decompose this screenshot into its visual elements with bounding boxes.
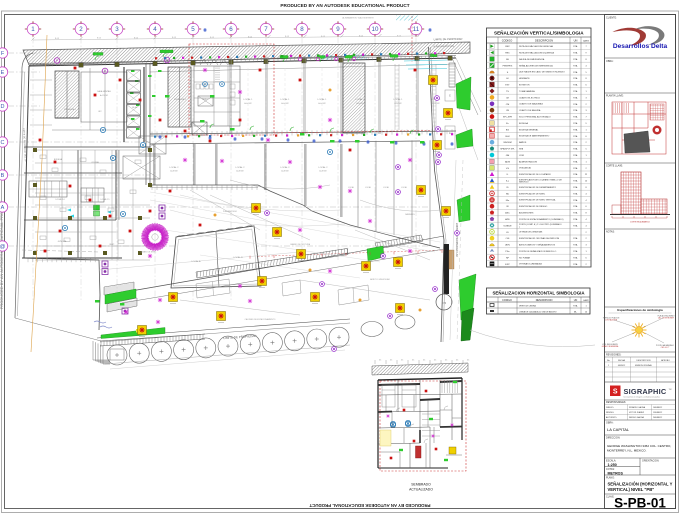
svg-text:PRODUCED BY AN AUTODESK EDUCAT: PRODUCED BY AN AUTODESK EDUCATIONAL PROD… — [280, 3, 409, 8]
svg-text:3.5: 3.5 — [456, 360, 458, 362]
svg-text:CE: CE — [506, 97, 510, 99]
svg-text:PZA.: PZA. — [573, 109, 578, 112]
svg-text:PZA.: PZA. — [573, 45, 578, 48]
svg-text:DESCRIPCION: DESCRIPCION — [535, 38, 553, 42]
svg-text:LA CAPITAL: LA CAPITAL — [607, 427, 630, 432]
svg-text:A: A — [1, 205, 5, 211]
svg-text:CUARTO DE BASURA.: CUARTO DE BASURA. — [519, 109, 541, 112]
svg-text:10/ENE/12: 10/ENE/12 — [653, 407, 662, 409]
svg-text:GRADO INGENIERIA: GRADO INGENIERIA — [602, 345, 619, 348]
svg-text:09/05/12: 09/05/12 — [618, 365, 625, 367]
svg-text:EXT: EXT — [505, 85, 510, 87]
svg-text:PZA.: PZA. — [573, 244, 578, 247]
svg-text:HIDRANTE: HIDRANTE — [519, 77, 530, 80]
svg-text:CON TAQUETE: CON TAQUETE — [605, 319, 618, 322]
svg-text:PZA.: PZA. — [573, 96, 578, 99]
svg-text:E: E — [449, 131, 451, 135]
svg-text:LOCAL 1: LOCAL 1 — [281, 98, 291, 101]
svg-text:DIRECCION:: DIRECCION: — [606, 437, 620, 440]
svg-text:ADMINISTRACION: ADMINISTRACION — [519, 160, 538, 163]
svg-text:PZA.: PZA. — [573, 71, 578, 74]
svg-text:CODIGO: CODIGO — [502, 38, 513, 42]
svg-text:GEORGE WASHINGTON 3452 COL. CE: GEORGE WASHINGTON 3452 COL. CENTRO, — [607, 444, 671, 448]
svg-text:ASC: ASC — [505, 212, 510, 215]
svg-text:POSTE DE SEÑALIZACION SENCILLO: POSTE DE SEÑALIZACION SENCILLO — [519, 250, 557, 253]
svg-text:los expertos en imagen y señal: los expertos en imagen y señalizacion gr… — [624, 396, 660, 399]
svg-text:PZA.: PZA. — [573, 167, 578, 170]
svg-text:NO FUMAR: NO FUMAR — [519, 256, 531, 259]
svg-text:1:250: 1:250 — [608, 463, 617, 467]
svg-text:A=54 M2: A=54 M2 — [394, 102, 401, 105]
svg-text:LOCAL 2: LOCAL 2 — [319, 166, 329, 169]
svg-text:REVISIONES:: REVISIONES: — [606, 354, 622, 357]
svg-text:PZA.: PZA. — [573, 199, 578, 202]
svg-text:A=54 M2: A=54 M2 — [432, 102, 439, 105]
svg-text:10: 10 — [372, 26, 379, 33]
svg-text:UN: UN — [574, 38, 578, 42]
svg-text:VIGILANCIA: VIGILANCIA — [519, 167, 531, 170]
svg-text:PZA.: PZA. — [573, 186, 578, 189]
svg-text:CUARTO ELECTRICO: CUARTO ELECTRICO — [519, 96, 541, 99]
svg-text:MONTERREY, N.L. MEXICO.: MONTERREY, N.L. MEXICO. — [607, 449, 647, 453]
svg-text:CAMBIO DE NIVEL: CAMBIO DE NIVEL — [140, 251, 157, 254]
svg-text:CODIGO: CODIGO — [502, 299, 512, 302]
svg-text:BG: BG — [506, 129, 509, 131]
svg-text:PZA.: PZA. — [573, 256, 578, 259]
svg-text:ADM: ADM — [505, 160, 510, 163]
svg-text:PZA.: PZA. — [573, 218, 578, 221]
svg-text:TOMA SIAMESA: TOMA SIAMESA — [519, 90, 535, 93]
svg-text:DESCRIPCION: DESCRIPCION — [637, 360, 651, 362]
svg-text:PZA.: PZA. — [573, 173, 578, 176]
svg-text:Desarrollos Delta: Desarrollos Delta — [613, 43, 668, 50]
svg-text:PZA.: PZA. — [573, 58, 578, 61]
svg-text:BAÑOS: BAÑOS — [519, 141, 527, 144]
svg-text:ELEV.: ELEV. — [132, 107, 138, 109]
svg-text:S: S — [613, 389, 618, 396]
svg-text:3.5: 3.5 — [379, 360, 381, 362]
svg-text:APROBO: APROBO — [661, 359, 670, 362]
svg-text:A=54 M2: A=54 M2 — [318, 102, 325, 105]
svg-text:PZA.: PZA. — [573, 205, 578, 208]
svg-text:SEMBRADO: SEMBRADO — [411, 483, 431, 487]
svg-text:A=54 M2: A=54 M2 — [244, 102, 251, 105]
svg-text:CORTE ESQUEMATICO: CORTE ESQUEMATICO — [630, 221, 651, 224]
svg-text:CB: CB — [506, 110, 510, 112]
svg-text:ACTUALIZADO: ACTUALIZADO — [409, 488, 433, 492]
svg-text:PZA.: PZA. — [573, 103, 578, 106]
svg-text:SEÑALIZACION HORIZONTAL SIMBOL: SEÑALIZACION HORIZONTAL SIMBOLOGIA — [492, 291, 585, 296]
svg-text:5: 5 — [191, 26, 195, 33]
svg-text:OIS: OIS — [506, 238, 510, 240]
svg-text:LIMITE DE PROPIEDAD: LIMITE DE PROPIEDAD — [434, 37, 463, 42]
svg-text:PRODUCED BY AN AUTODESK EDUCAT: PRODUCED BY AN AUTODESK EDUCATIONAL PROD… — [0, 200, 4, 309]
svg-text:VG: VG — [506, 168, 509, 170]
svg-text:4: 4 — [153, 26, 157, 33]
svg-text:S-PB-01: S-PB-01 — [614, 496, 666, 511]
svg-text:BODEGA: BODEGA — [54, 158, 63, 161]
svg-text:PZA.: PZA. — [573, 116, 578, 119]
svg-text:B-M: B-M — [505, 136, 509, 138]
svg-text:S-MBLE: S-MBLE — [503, 225, 512, 227]
svg-text:OBRA:: OBRA: — [606, 60, 614, 63]
svg-text:A=120 M2: A=120 M2 — [100, 94, 108, 97]
svg-text:15/ENE/12: 15/ENE/12 — [653, 412, 662, 414]
svg-text:SERGIO GAONA: SERGIO GAONA — [629, 416, 644, 419]
svg-text:ARROYO VEHICULAR: ARROYO VEHICULAR — [370, 278, 390, 281]
svg-text:LINEA DE CALZADA 10 CM DE ANCH: LINEA DE CALZADA 10 CM DE ANCHO — [519, 311, 557, 314]
svg-text:IDENTIFICADOR DE RIESGO: IDENTIFICADOR DE RIESGO — [519, 205, 548, 208]
svg-text:PZA.: PZA. — [573, 52, 578, 55]
svg-text:3.5: 3.5 — [434, 360, 436, 362]
svg-text:PZA.: PZA. — [573, 263, 578, 266]
svg-text:LIMITE DE PROPIEDAD / AV.: LIMITE DE PROPIEDAD / AV. — [455, 223, 459, 258]
svg-text:LOCAL 14: LOCAL 14 — [56, 198, 65, 201]
svg-text:ORIENTACION:: ORIENTACION: — [642, 460, 659, 463]
svg-text:LOCAL: LOCAL — [348, 186, 354, 189]
svg-text:F70: F70 — [442, 302, 447, 305]
svg-text:BODEGA DE MANTENIMIENTO: BODEGA DE MANTENIMIENTO — [519, 135, 550, 138]
svg-text:GM: GM — [506, 155, 510, 157]
svg-text:SERVICIO: SERVICIO — [519, 182, 529, 184]
svg-text:VERTICAL) NIVEL "PB": VERTICAL) NIVEL "PB" — [608, 487, 655, 492]
svg-text:CAMBIO DE TEXTURA: CAMBIO DE TEXTURA — [290, 243, 311, 246]
svg-text:LOCAL: LOCAL — [401, 186, 407, 189]
svg-text:AUTORIZO:: AUTORIZO: — [606, 416, 617, 419]
svg-text:3.5: 3.5 — [423, 360, 425, 362]
svg-text:DESCRIPCION: DESCRIPCION — [536, 299, 553, 302]
svg-text:C: C — [1, 140, 5, 146]
svg-text:PZA.: PZA. — [573, 135, 578, 138]
svg-text:BODEGA GENERAL: BODEGA GENERAL — [519, 128, 539, 131]
svg-text:ESCALERA 1: ESCALERA 1 — [64, 108, 76, 111]
svg-text:TM: TM — [669, 389, 672, 391]
svg-text:@: @ — [0, 244, 6, 250]
svg-text:No.: No. — [607, 360, 611, 362]
svg-text:PZA.: PZA. — [573, 148, 578, 151]
svg-text:CORTE LLAVE:: CORTE LLAVE: — [606, 165, 623, 168]
svg-text:RUTA DE EVACUACION DERECHA: RUTA DE EVACUACION DERECHA — [519, 45, 553, 48]
svg-text:EXTINTOR: EXTINTOR — [519, 85, 530, 87]
svg-text:LD: LD — [506, 232, 509, 234]
svg-text:2: 2 — [79, 26, 83, 33]
svg-text:A=38 M2: A=38 M2 — [319, 170, 326, 173]
svg-text:RESPONSABLES:: RESPONSABLES: — [606, 401, 626, 404]
svg-text:ESCALERA 2: ESCALERA 2 — [174, 98, 186, 101]
svg-text:PZA.: PZA. — [573, 212, 578, 215]
svg-text:LOCAL 2: LOCAL 2 — [281, 166, 291, 169]
svg-text:3.5: 3.5 — [445, 360, 447, 362]
svg-text:AVN: AVN — [505, 244, 510, 247]
svg-text:GYM: GYM — [519, 155, 524, 157]
svg-text:P: P — [166, 58, 168, 62]
svg-text:PZA.: PZA. — [573, 77, 578, 80]
svg-text:IDENTIFICADOR DE NIVEL: IDENTIFICADOR DE NIVEL — [519, 192, 546, 195]
svg-text:ASCENSORES: ASCENSORES — [519, 212, 534, 215]
svg-text:PZA.: PZA. — [573, 90, 578, 93]
svg-text:SPA/SPV/ SPL: SPA/SPV/ SPL — [500, 148, 515, 151]
svg-text:IDENTIFICADOR DE DEPARTAMENTO: IDENTIFICADOR DE DEPARTAMENTO — [519, 186, 557, 189]
svg-text:SIGRAPHIC: SIGRAPHIC — [624, 387, 667, 396]
svg-text:E: E — [1, 70, 5, 76]
svg-text:QUE HACER EN CASO DE SISMO E I: QUE HACER EN CASO DE SISMO E INCENDIO — [519, 71, 565, 74]
svg-text:IDENTIFICADOR DE LOCATARIO: IDENTIFICADOR DE LOCATARIO — [519, 173, 551, 176]
svg-text:PZA.: PZA. — [573, 122, 578, 125]
svg-text:P: P — [56, 59, 58, 63]
svg-text:IDENTIFICADOR DE NIVEL VERTICA: IDENTIFICADOR DE NIVEL VERTICAL — [519, 199, 557, 202]
svg-text:CANT.: CANT. — [583, 299, 589, 302]
svg-text:A=38 M2: A=38 M2 — [236, 170, 243, 173]
svg-text:3.5: 3.5 — [412, 360, 414, 362]
svg-text:VITRINAS ILUMINADAS: VITRINAS ILUMINADAS — [519, 263, 542, 266]
svg-text:LOCAL 2: LOCAL 2 — [170, 166, 180, 169]
svg-text:RICARDO GAONA: RICARDO GAONA — [629, 406, 646, 409]
svg-text:NOTAS:: NOTAS: — [606, 231, 615, 234]
svg-text:AVISOS VARIOS Y SEÑALAMIENTOS: AVISOS VARIOS Y SEÑALAMIENTOS — [519, 244, 556, 247]
svg-text:LOCAL: LOCAL — [365, 186, 371, 189]
svg-text:E: E — [449, 94, 451, 98]
svg-text:11: 11 — [413, 26, 420, 33]
svg-text:GYM-SPA: GYM-SPA — [58, 240, 67, 243]
svg-text:A=38 M2: A=38 M2 — [170, 170, 177, 173]
svg-text:B: B — [1, 173, 5, 179]
svg-text:PZA.: PZA. — [573, 192, 578, 195]
svg-text:DIBUJO:: DIBUJO: — [606, 407, 614, 409]
svg-text:VERTICE CEBRA: VERTICE CEBRA — [519, 305, 536, 308]
svg-text:SPL-SPE: SPL-SPE — [503, 117, 513, 119]
svg-text:3: 3 — [115, 26, 119, 33]
svg-text:LOCAL 1: LOCAL 1 — [318, 98, 328, 101]
svg-text:PZA.: PZA. — [573, 224, 578, 227]
svg-text:SALIDA DE EMERGENCIA: SALIDA DE EMERGENCIA — [519, 58, 545, 61]
svg-text:METROS: METROS — [608, 471, 624, 475]
svg-text:PZA.: PZA. — [573, 154, 578, 157]
svg-text:PZA.: PZA. — [573, 128, 578, 131]
svg-text:PEM/PEX: PEM/PEX — [503, 65, 513, 67]
svg-text:PLANTA LLAVE:: PLANTA LLAVE: — [606, 95, 624, 98]
svg-text:IDENTIFICADOR OFICINAS SHOWROO: IDENTIFICADOR OFICINAS SHOWROOM — [519, 237, 559, 240]
svg-text:8: 8 — [300, 26, 304, 33]
svg-text:LETRAS DECORATIVAS: LETRAS DECORATIVAS — [519, 231, 543, 234]
svg-text:CED. 40 2": CED. 40 2" — [661, 347, 670, 349]
svg-text:SEÑALADORES DE EMERGENCIA: SEÑALADORES DE EMERGENCIA — [519, 64, 553, 67]
svg-text:6: 6 — [229, 26, 233, 33]
svg-text:ALINEAMIENTO VIAL: ALINEAMIENTO VIAL — [433, 45, 455, 48]
svg-text:PZA.: PZA. — [573, 305, 578, 308]
svg-text:PZA.: PZA. — [573, 64, 578, 67]
svg-text:LOCAL 1: LOCAL 1 — [244, 98, 254, 101]
svg-text:SOLO PERSONAL AUTORIZADO: SOLO PERSONAL AUTORIZADO — [519, 116, 551, 119]
svg-text:PRODUCED BY AN AUTODESK EDUCAT: PRODUCED BY AN AUTODESK EDUCATIONAL PROD… — [309, 503, 430, 508]
svg-text:FECHA: FECHA — [618, 359, 625, 362]
svg-text:WH/WM: WH/WM — [503, 142, 511, 144]
svg-text:RAMPA 8%: RAMPA 8% — [405, 213, 415, 216]
svg-text:EMISION ORIGINAL: EMISION ORIGINAL — [635, 364, 652, 367]
svg-text:REVISO:: REVISO: — [606, 412, 615, 414]
svg-text:POSTE DE ESTACIONAMIENTO (ILUM: POSTE DE ESTACIONAMIENTO (ILUMINADO) — [519, 218, 564, 221]
svg-text:7: 7 — [264, 26, 268, 33]
svg-text:VICTOR JUAREZ: VICTOR JUAREZ — [629, 411, 645, 414]
svg-text:COCINA: COCINA — [91, 161, 99, 164]
svg-text:1: 1 — [31, 26, 35, 33]
svg-text:PZA.: PZA. — [573, 237, 578, 240]
svg-text:CUARTO DE MAQUINAS: CUARTO DE MAQUINAS — [519, 103, 543, 106]
svg-text:LOCAL 15: LOCAL 15 — [101, 198, 110, 201]
svg-text:OBRA:: OBRA: — [606, 422, 614, 425]
svg-text:SERV.: SERV. — [202, 99, 208, 101]
svg-text:PZA.: PZA. — [573, 160, 578, 163]
svg-text:APE: APE — [505, 218, 510, 221]
svg-text:UN: UN — [574, 299, 578, 302]
svg-text:EXP: EXP — [505, 264, 510, 266]
svg-text:PZA.: PZA. — [573, 84, 578, 87]
svg-text:CM: CM — [506, 104, 510, 106]
svg-text:SEÑALIZACIÓN (HORIZONTAL Y: SEÑALIZACIÓN (HORIZONTAL Y — [608, 482, 673, 487]
svg-text:LOCAL: LOCAL — [383, 186, 389, 189]
svg-text:LOCAL 2: LOCAL 2 — [236, 166, 246, 169]
svg-text:SPA: SPA — [519, 148, 524, 151]
svg-text:9: 9 — [336, 26, 340, 33]
svg-text:PLANO:: PLANO: — [606, 477, 615, 480]
svg-text:PZA.: PZA. — [573, 180, 578, 183]
svg-text:PZA.: PZA. — [573, 250, 578, 253]
svg-text:PZA.: PZA. — [573, 141, 578, 144]
svg-text:LOCAL 1: LOCAL 1 — [394, 98, 404, 101]
svg-text:CAL. 18 RETROREF.: CAL. 18 RETROREF. — [658, 317, 675, 320]
svg-text:3.5: 3.5 — [390, 360, 392, 362]
svg-text:Especificaciones de simbología: Especificaciones de simbología — [617, 308, 663, 312]
svg-text:SEÑALIZACIÓN VERTICAL/SIMBOLOG: SEÑALIZACIÓN VERTICAL/SIMBOLOGIA — [494, 29, 584, 36]
svg-text:CLIENTE:: CLIENTE: — [606, 17, 617, 20]
svg-text:SALA VENTAS: SALA VENTAS — [97, 90, 111, 93]
svg-text:PLAZA ACCESO: PLAZA ACCESO — [223, 210, 238, 213]
svg-text:POSTE (COMP. E.) Y LOGOTIPO (I: POSTE (COMP. E.) Y LOGOTIPO (ILUMINADO — [519, 223, 562, 226]
svg-text:3.5: 3.5 — [401, 360, 403, 362]
svg-text:RUTA DE EVACUACION IZQUIERDA: RUTA DE EVACUACION IZQUIERDA — [519, 52, 555, 55]
svg-text:ALINEAMIENTO VIAL EXISTENTE: ALINEAMIENTO VIAL EXISTENTE — [342, 17, 374, 20]
svg-text:VEST.: VEST. — [109, 244, 115, 246]
svg-text:CAJONES DE ESTACIONAMIENTO: CAJONES DE ESTACIONAMIENTO — [245, 318, 276, 321]
svg-text:ML.: ML. — [574, 312, 578, 314]
svg-text:20/ENE/12: 20/ENE/12 — [653, 417, 662, 419]
svg-text:A=38 M2: A=38 M2 — [281, 170, 288, 173]
svg-text:D: D — [1, 104, 5, 110]
svg-text:BODEGA: BODEGA — [519, 122, 529, 125]
svg-text:CANT.: CANT. — [583, 39, 590, 42]
svg-text:A=54 M2: A=54 M2 — [281, 102, 288, 105]
svg-text:3.5: 3.5 — [467, 360, 469, 362]
